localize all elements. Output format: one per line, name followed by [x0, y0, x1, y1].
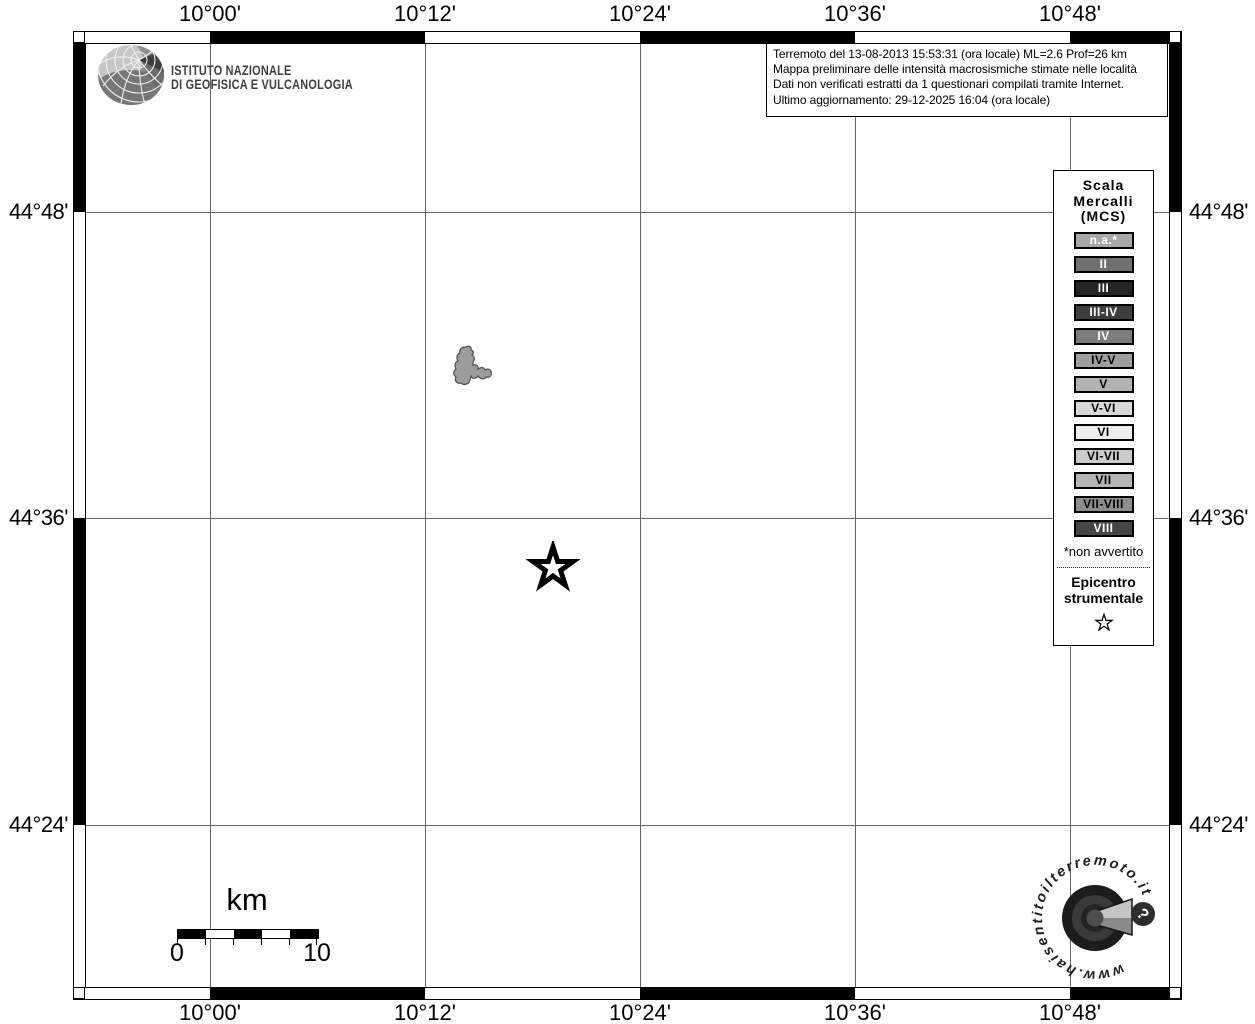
- ingv-line2: DI GEOFISICA E VULCANOLOGIA: [171, 77, 353, 91]
- legend-item-3: III: [1074, 280, 1134, 297]
- ingv-logo-text: ISTITUTO NAZIONALE DI GEOFISICA E VULCAN…: [171, 63, 353, 91]
- legend-item-4: IV: [1074, 328, 1134, 345]
- scalebar-tick: [261, 938, 262, 945]
- lon-label-bottom-3: 10°24': [585, 1000, 695, 1024]
- scalebar-tick: [233, 938, 234, 945]
- scalebar-segment: [290, 930, 318, 938]
- frame-segment: [210, 988, 425, 999]
- gridline-lon: [210, 44, 211, 987]
- lon-label-top-2: 10°12': [370, 1, 480, 27]
- frame-segment: [74, 518, 85, 825]
- legend-epicenter-line2: strumentale: [1054, 590, 1153, 607]
- frame-segment: [210, 32, 425, 43]
- legend-item-na: n.a.*: [1074, 232, 1134, 249]
- ingv-globe-icon: [97, 44, 167, 106]
- gridline-lon: [855, 44, 856, 987]
- scalebar-segment: [178, 930, 206, 938]
- lon-label-top-4: 10°36': [800, 1, 910, 27]
- haisentito-terremoto-logo: ? www.haisentitoilterremoto.it: [1031, 854, 1159, 982]
- legend-item-2: II: [1074, 256, 1134, 273]
- frame-segment: [1070, 988, 1170, 999]
- legend-item-6-7: VI-VII: [1074, 448, 1134, 465]
- legend-title-line2: Mercalli: [1054, 194, 1153, 210]
- legend-title-line1: Scala: [1054, 178, 1153, 194]
- legend-item-6: VI: [1074, 424, 1134, 441]
- lon-label-top-1: 10°00': [155, 1, 265, 27]
- lon-label-top-5: 10°48': [1015, 1, 1125, 27]
- lon-label-top-3: 10°24': [585, 1, 695, 27]
- info-line-updated: Ultimo aggiornamento: 29-12-2025 16:04 (…: [773, 93, 1161, 108]
- map-area: [85, 43, 1170, 988]
- info-line-event: Terremoto del 13-08-2013 15:53:31 (ora l…: [773, 47, 1161, 62]
- info-line-data: Dati non verificati estratti da 1 questi…: [773, 77, 1161, 92]
- frame-segment: [1170, 518, 1181, 825]
- legend-item-7: VII: [1074, 472, 1134, 489]
- lat-label-left-1: 44°48': [0, 199, 68, 225]
- scalebar-unit-label: km: [195, 882, 299, 918]
- legend-epicenter-title: Epicentro strumentale: [1054, 574, 1153, 607]
- frame-segment: [640, 32, 855, 43]
- legend-divider: [1057, 567, 1150, 568]
- scalebar-segment: [262, 930, 290, 938]
- lat-label-left-2: 44°36': [0, 505, 68, 531]
- scalebar-segment: [234, 930, 262, 938]
- scalebar-start-label: 0: [165, 939, 189, 968]
- epicenter-star-icon: [526, 541, 580, 595]
- legend-items: n.a.* II III III-IV IV IV-V V V-VI VI VI…: [1054, 232, 1153, 537]
- legend-item-5-6: V-VI: [1074, 400, 1134, 417]
- legend-epicenter-line1: Epicentro: [1054, 574, 1153, 591]
- legend-item-4-5: IV-V: [1074, 352, 1134, 369]
- legend-title: Scala Mercalli (MCS): [1054, 178, 1153, 225]
- scalebar-end-label: 10: [295, 939, 339, 968]
- macroseismic-map-page: 10°00' 10°12' 10°24' 10°36' 10°48' 10°00…: [0, 0, 1255, 1024]
- frame-corner: [73, 31, 85, 43]
- gridline-lat: [86, 212, 1169, 213]
- frame-segment: [640, 988, 855, 999]
- legend-star-icon: [1093, 612, 1115, 634]
- earthquake-info-box: Terremoto del 13-08-2013 15:53:31 (ora l…: [766, 43, 1168, 117]
- lat-label-right-2: 44°36': [1189, 505, 1255, 531]
- scalebar-tick: [289, 938, 290, 945]
- legend-item-5: V: [1074, 376, 1134, 393]
- frame-segment: [1170, 43, 1181, 212]
- scalebar-tick: [205, 938, 206, 945]
- gridline-lat: [86, 825, 1169, 826]
- lon-label-bottom-2: 10°12': [370, 1000, 480, 1024]
- frame-corner: [1169, 31, 1181, 43]
- info-line-map: Mappa preliminare delle intensità macros…: [773, 62, 1161, 77]
- lat-label-right-3: 44°24': [1189, 812, 1255, 838]
- legend-title-line3: (MCS): [1054, 209, 1153, 225]
- gridline-lon: [640, 44, 641, 987]
- gridline-lat: [86, 518, 1169, 519]
- frame-corner: [73, 987, 85, 999]
- legend-item-8: VIII: [1074, 520, 1134, 537]
- legend-footnote: *non avvertito: [1054, 544, 1153, 559]
- scalebar-segment: [206, 930, 234, 938]
- mercalli-legend: Scala Mercalli (MCS) n.a.* II III III-IV…: [1053, 170, 1154, 646]
- lon-label-bottom-4: 10°36': [800, 1000, 910, 1024]
- frame-corner: [1169, 987, 1181, 999]
- lat-label-left-3: 44°24': [0, 812, 68, 838]
- legend-item-7-8: VII-VIII: [1074, 496, 1134, 513]
- lon-label-bottom-1: 10°00': [155, 1000, 265, 1024]
- scalebar: [177, 929, 319, 939]
- lon-label-bottom-5: 10°48': [1015, 1000, 1125, 1024]
- ingv-line1: ISTITUTO NAZIONALE: [171, 63, 353, 77]
- locality-polygon: [452, 344, 496, 390]
- legend-item-3-4: III-IV: [1074, 304, 1134, 321]
- frame-segment: [1070, 32, 1170, 43]
- lat-label-right-1: 44°48': [1189, 199, 1255, 225]
- frame-segment: [74, 43, 85, 212]
- gridline-lon: [425, 44, 426, 987]
